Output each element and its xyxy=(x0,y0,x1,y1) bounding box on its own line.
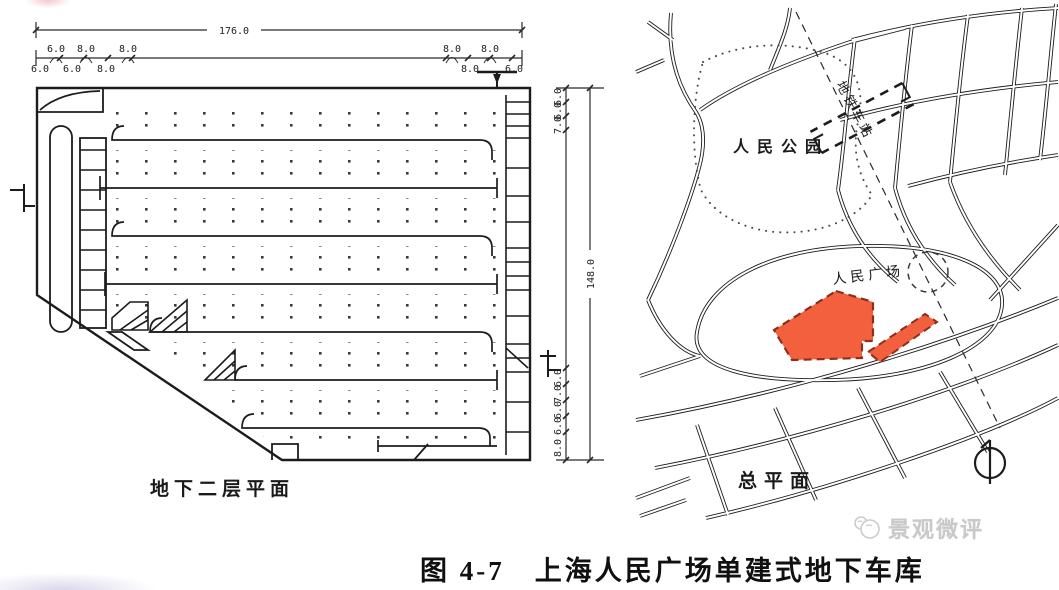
scan-artifact-pink xyxy=(26,0,70,8)
svg-text:8.0: 8.0 xyxy=(77,44,95,55)
watermark: 景观微评 xyxy=(852,512,984,544)
watermark-text: 景观微评 xyxy=(888,512,984,544)
svg-text:6.0: 6.0 xyxy=(553,401,564,419)
scanned-figure-page: { "figure": { "caption": "图 4-7 上海人民广场单建… xyxy=(0,0,1059,590)
parking-stall-dots xyxy=(108,106,502,440)
svg-text:8.0: 8.0 xyxy=(461,64,479,75)
svg-text:7.0: 7.0 xyxy=(553,116,564,134)
svg-text:6.0: 6.0 xyxy=(553,369,564,387)
svg-text:6.0: 6.0 xyxy=(63,64,81,75)
svg-text:8.0: 8.0 xyxy=(119,44,137,55)
scan-artifact-lavender xyxy=(0,573,155,590)
stair-rungs xyxy=(80,150,106,310)
svg-text:6.0: 6.0 xyxy=(553,417,564,435)
svg-text:6.0: 6.0 xyxy=(31,64,49,75)
bottom-notch xyxy=(272,444,298,460)
right-ramp-strip xyxy=(506,95,530,455)
floor-plan-drawing: 176.0 6.0 8.0 8.0 8.0 8.0 6.0 6.0 8.0 8.… xyxy=(0,0,630,545)
svg-text:8.0: 8.0 xyxy=(443,44,461,55)
svg-text:8.0: 8.0 xyxy=(481,44,499,55)
north-arrow xyxy=(975,440,1005,484)
height-dim-labels-top: 6.0 6.0 7.0 xyxy=(553,88,564,134)
park-label: 人民公园 xyxy=(733,138,829,156)
svg-text:6.0: 6.0 xyxy=(505,64,523,75)
watermark-logo-icon xyxy=(852,514,884,542)
metro-axis-line xyxy=(796,12,1000,428)
floor-plan-title: 地下二层平面 xyxy=(150,474,350,501)
ramp-rungs xyxy=(506,102,530,432)
garage-site-main xyxy=(774,291,873,360)
site-plan-drawing: 地铁车站 人民公园 人民广场 xyxy=(630,0,1059,545)
width-dim-labels-above: 6.0 8.0 8.0 8.0 8.0 xyxy=(47,44,499,55)
height-dim-labels-bottom: 6.0 7.0 6.0 6.0 8.0 xyxy=(553,369,564,457)
svg-text:7.0: 7.0 xyxy=(553,385,564,403)
svg-text:6.0: 6.0 xyxy=(47,44,65,55)
top-left-entrance-ramp xyxy=(37,88,103,112)
dim-total-height: 148.0 xyxy=(586,259,597,289)
svg-text:8.0: 8.0 xyxy=(97,64,115,75)
figure-caption: 图 4-7 上海人民广场单建式地下车库 xyxy=(420,549,1059,588)
section-marker-left xyxy=(10,184,35,212)
site-plan-title: 总平面 xyxy=(738,466,878,493)
width-dim-labels-below: 6.0 6.0 8.0 8.0 6.0 xyxy=(31,64,523,75)
svg-text:8.0: 8.0 xyxy=(553,439,564,457)
square-label: 人民广场 xyxy=(832,263,905,288)
dim-total-width: 176.0 xyxy=(219,26,249,37)
